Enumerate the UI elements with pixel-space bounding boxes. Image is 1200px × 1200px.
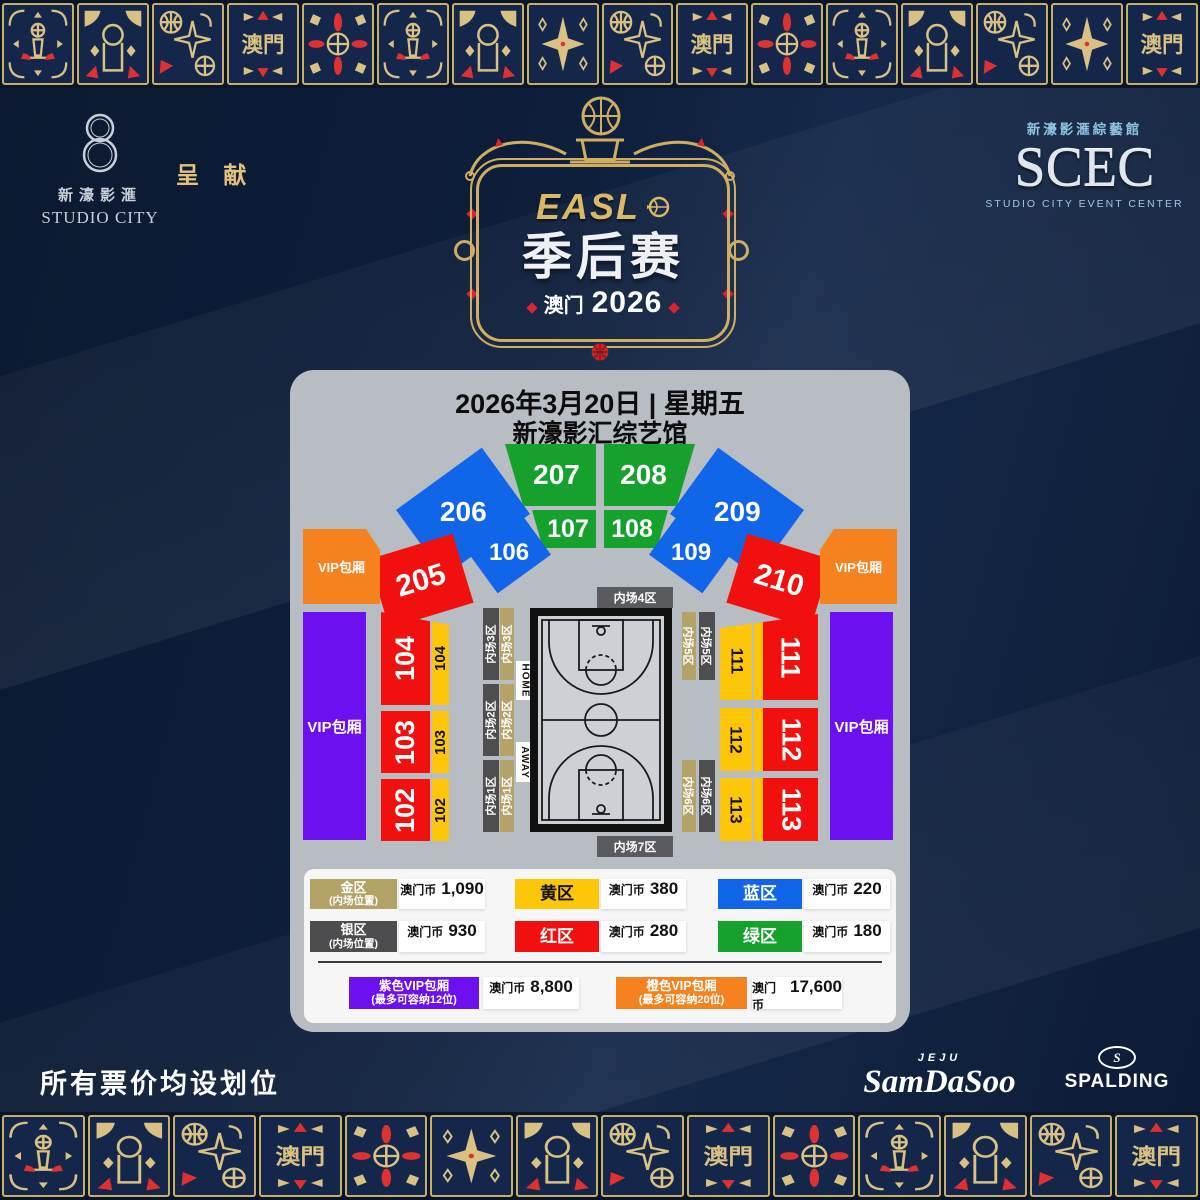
emblem-frame: EASL 季后赛 澳门 2026	[476, 164, 730, 342]
scec-en: STUDIO CITY EVENT CENTER	[982, 198, 1187, 210]
legend-blue-zone: 蓝区	[718, 879, 802, 909]
scec-cn: 新濠影滙綜藝館	[982, 118, 1187, 138]
border-tile-macau: 澳門	[1126, 3, 1198, 85]
legend-blue-price: 澳门币220	[804, 879, 890, 909]
border-tile-macau: 澳門	[1115, 1115, 1198, 1197]
floor-zone-2-strip: 内场2区	[500, 684, 514, 756]
legend-gold-zone: 金区(内场位置)	[310, 879, 397, 909]
spalding-logo: S SPALDING	[1052, 1046, 1182, 1093]
section-103-gold: 103	[432, 711, 449, 773]
section-112-yellow: 112	[720, 708, 752, 771]
section-112-red: 112	[754, 708, 818, 771]
section-104-red: 104	[381, 612, 430, 705]
svg-text:澳門: 澳門	[275, 1144, 325, 1168]
floor-zone-3-strip: 内场3区	[483, 608, 499, 680]
legend-gold-price: 澳门币1,090	[399, 879, 485, 909]
section-111-red: 111	[754, 614, 818, 700]
floor-zone-5-strip: 内场5区	[699, 612, 715, 680]
studio-city-cn: 新濠影滙	[30, 184, 170, 205]
seating-chart-panel: 2026年3月20日 | 星期五 新濠影汇综艺馆 207 208 107 108…	[290, 370, 910, 1032]
easl-ball-icon	[646, 195, 670, 219]
studio-city-logo: 新濠影滙 STUDIO CITY	[30, 112, 170, 228]
section-104-gold: 104	[432, 612, 449, 705]
border-tile-court	[77, 3, 149, 85]
vip-box-orange-right: VIP包厢	[820, 529, 897, 604]
floor-zone-7-label: 内场7区	[597, 836, 673, 857]
red-diamond-accent	[526, 302, 537, 313]
legend-red-price: 澳门币280	[601, 921, 686, 952]
floor-zone-6-strip: 内场6区	[699, 760, 715, 832]
border-tile-court	[516, 1115, 599, 1197]
floor-zone-1-strip: 内场1区	[483, 760, 499, 832]
gold-ring-ornament	[454, 240, 475, 261]
easl-year: 2026	[592, 286, 663, 320]
legend-red-zone: 红区	[515, 921, 599, 952]
border-tile-diamond	[527, 3, 599, 85]
border-tile-basketballs	[601, 1115, 684, 1197]
border-tile-basketballs	[602, 3, 674, 85]
vip-box-orange-left: VIP包厢	[303, 529, 380, 604]
studio-city-8-icon	[78, 112, 122, 174]
border-tile-basketballs	[976, 3, 1048, 85]
svg-text:澳門: 澳門	[1132, 1144, 1182, 1168]
scec-logo: 新濠影滙綜藝館 SCEC STUDIO CITY EVENT CENTER	[982, 118, 1187, 210]
border-tile-trophy	[858, 1115, 941, 1197]
border-tile-flower	[773, 1115, 856, 1197]
basketball-court	[530, 608, 672, 832]
border-tile-trophy	[2, 1115, 85, 1197]
presents-label: 呈 献	[176, 156, 255, 190]
border-tile-basketballs	[173, 1115, 256, 1197]
price-legend: 金区(内场位置) 澳门币1,090 黄区 澳门币380 蓝区 澳门币220 银区…	[304, 869, 896, 1023]
red-diamond-accent	[669, 302, 680, 313]
red-basketball-icon	[590, 342, 610, 362]
floor-zone-5-strip: 内场5区	[682, 612, 696, 680]
easl-title: 季后赛	[522, 229, 684, 285]
section-111-yellow: 111	[720, 622, 752, 700]
legend-yellow-price: 澳门币380	[601, 879, 686, 909]
floor-zone-6-strip: 内场6区	[682, 760, 696, 832]
border-tile-diamond	[1051, 3, 1123, 85]
border-tile-basketballs	[1030, 1115, 1113, 1197]
svg-text:澳門: 澳門	[241, 32, 284, 57]
svg-text:澳門: 澳門	[691, 32, 734, 57]
legend-divider	[318, 961, 882, 963]
studio-city-en: STUDIO CITY	[30, 208, 170, 228]
legend-green-zone: 绿区	[718, 921, 802, 952]
scec-abbr: SCEC	[982, 138, 1187, 198]
easl-playoffs-emblem: EASL 季后赛 澳门 2026	[440, 94, 760, 360]
svg-text:澳門: 澳門	[1141, 32, 1184, 57]
border-tile-flower	[751, 3, 823, 85]
spalding-name: SPALDING	[1052, 1071, 1182, 1093]
border-tile-trophy	[2, 3, 74, 85]
legend-purple-vip-price: 澳门币8,800	[483, 977, 579, 1009]
border-tile-trophy	[377, 3, 449, 85]
floor-zone-3-strip: 内场3区	[500, 608, 514, 680]
section-102-gold: 102	[432, 779, 449, 841]
samdasoo-logo: JEJU SamDaSoo	[852, 1052, 1027, 1101]
floor-zone-4-label: 内场4区	[597, 587, 673, 608]
vip-box-purple-right: VIP包厢	[830, 612, 893, 840]
poster-page: 澳門澳門澳門 澳門澳門澳門 新濠影滙 STUDIO CITY 呈 献	[0, 0, 1200, 1200]
easl-city: 澳门	[544, 289, 584, 318]
event-venue: 新濠影汇综艺馆	[290, 414, 910, 450]
border-tile-macau: 澳門	[227, 3, 299, 85]
section-103-red: 103	[381, 711, 430, 773]
floor-zone-1-strip: 内场1区	[500, 760, 514, 832]
floor-zone-2-strip: 内场2区	[483, 684, 499, 756]
border-tile-macau: 澳門	[259, 1115, 342, 1197]
section-102-red: 102	[381, 779, 430, 841]
border-tile-macau: 澳門	[687, 1115, 770, 1197]
gold-ring-ornament	[728, 240, 749, 261]
border-tile-flower	[345, 1115, 428, 1197]
vip-box-purple-left: VIP包厢	[303, 612, 366, 840]
legend-yellow-zone: 黄区	[515, 879, 599, 909]
border-tile-trophy	[826, 3, 898, 85]
section-113-yellow: 113	[720, 778, 752, 841]
legend-silver-zone: 银区(内场位置)	[310, 921, 397, 952]
legend-silver-price: 澳门币930	[399, 921, 485, 952]
legend-orange-vip-price: 澳门币17,600	[752, 977, 842, 1009]
svg-text:澳門: 澳門	[704, 1144, 754, 1168]
decorative-border-bottom: 澳門澳門澳門	[0, 1112, 1200, 1200]
decorative-border-top: 澳門澳門澳門	[0, 0, 1200, 88]
samdasoo-name: SamDaSoo	[852, 1064, 1027, 1101]
section-210: 210	[726, 534, 831, 629]
legend-purple-vip: 紫色VIP包厢(最多可容纳12位)	[349, 977, 479, 1009]
footer-note: 所有票价均设划位	[40, 1062, 280, 1101]
legend-orange-vip: 橙色VIP包厢(最多可容纳20位)	[616, 977, 747, 1009]
section-207: 207	[505, 444, 596, 506]
legend-green-price: 澳门币180	[804, 921, 890, 952]
border-tile-macau: 澳門	[676, 3, 748, 85]
border-tile-court	[88, 1115, 171, 1197]
border-tile-court	[901, 3, 973, 85]
border-tile-court	[452, 3, 524, 85]
border-tile-court	[944, 1115, 1027, 1197]
spalding-s-icon: S	[1098, 1046, 1136, 1069]
border-tile-basketballs	[152, 3, 224, 85]
border-tile-flower	[302, 3, 374, 85]
easl-brand: EASL	[536, 186, 640, 228]
border-tile-diamond	[430, 1115, 513, 1197]
section-113-red: 113	[754, 778, 818, 841]
samdasoo-jeju: JEJU	[852, 1052, 1027, 1064]
